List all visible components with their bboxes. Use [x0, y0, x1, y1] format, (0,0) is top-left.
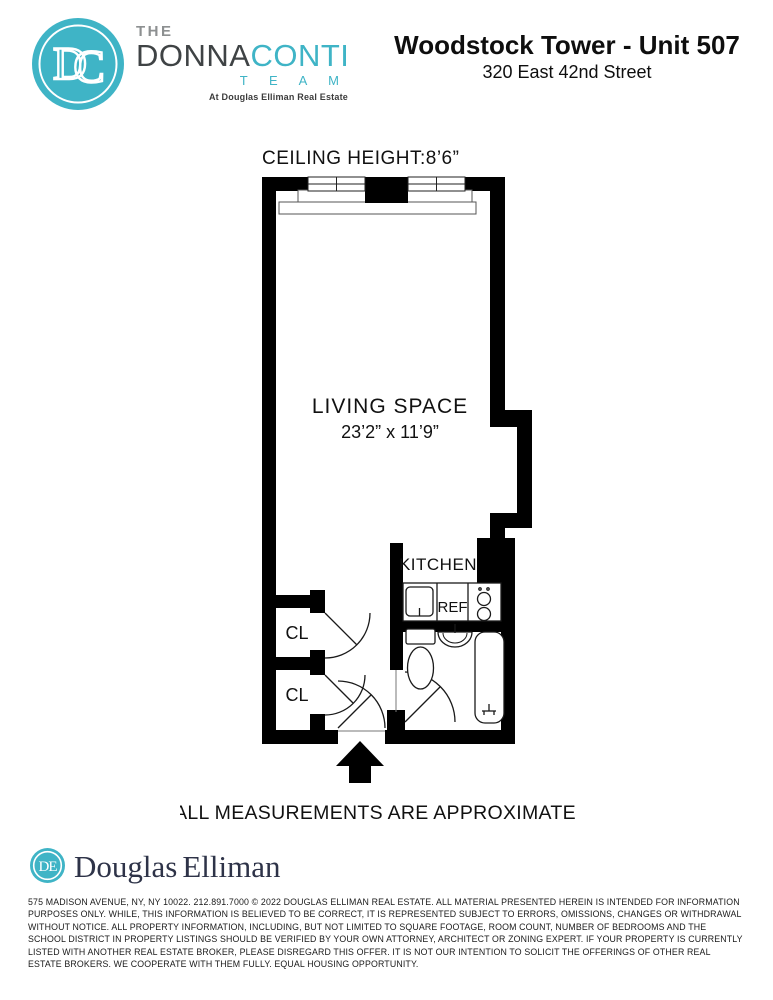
jamb-closet-2 — [310, 650, 325, 675]
brand-tagline: At Douglas Elliman Real Estate — [136, 92, 348, 102]
wall-alcove-right — [517, 410, 532, 528]
wall-bottom-left — [262, 730, 338, 744]
svg-text:C: C — [73, 41, 104, 93]
brand-name: DONNACONTI — [136, 39, 348, 72]
douglas-elliman-logo-icon: DE — [28, 846, 68, 886]
title-block: Woodstock Tower - Unit 507 320 East 42nd… — [388, 30, 746, 84]
floorplan-page: D C THE DONNACONTI T E A M At Douglas El… — [0, 0, 773, 1000]
measurements-note: ALL MEASUREMENTS ARE APPROXIMATE — [180, 802, 576, 824]
bathtub-icon — [475, 632, 504, 723]
refrigerator-label: REF — [438, 599, 468, 616]
stove-burner-2-icon — [478, 608, 491, 621]
window-sill-outer — [279, 202, 476, 214]
wordmark-douglas: Douglas — [74, 849, 177, 884]
window-pier — [365, 177, 408, 203]
de-monogram-icon: DE — [39, 859, 58, 875]
brand-team: T E A M — [136, 73, 348, 89]
jamb-closet-1 — [310, 590, 325, 613]
brand-the: THE — [136, 24, 348, 39]
brand-name-conti: CONTI — [250, 38, 349, 73]
toilet-tank-icon — [406, 629, 435, 644]
floorplan-drawing: CEILING HEIGHT:8’6” LIVING SPACE 23’2” x… — [180, 135, 600, 835]
stove-burner-1-icon — [478, 593, 491, 606]
stove-knob-2 — [487, 588, 489, 590]
jamb-closet-3 — [310, 714, 325, 731]
wall-kitchen-corner — [477, 538, 515, 585]
window-bay — [279, 177, 476, 214]
living-space-dimensions: 23’2” x 11’9” — [341, 422, 439, 442]
kitchen-label: KITCHEN — [399, 555, 477, 574]
dc-monogram-icon: D C — [53, 38, 105, 93]
wordmark-elliman: Elliman — [182, 849, 280, 884]
door-entry — [338, 681, 385, 731]
legal-disclaimer: 575 MADISON AVENUE, NY, NY 10022. 212.89… — [28, 896, 745, 970]
stove-knob-1 — [479, 588, 481, 590]
page-address: 320 East 42nd Street — [388, 60, 746, 84]
ceiling-height-label: CEILING HEIGHT:8’6” — [262, 148, 459, 169]
donna-conti-brand: D C THE DONNACONTI T E A M At Douglas El… — [30, 16, 348, 112]
bathroom-fixtures — [406, 624, 504, 723]
closet-2-label: CL — [285, 685, 308, 705]
toilet-bowl-icon — [408, 647, 434, 689]
wall-bottom-right — [385, 730, 515, 744]
living-space-label: LIVING SPACE — [312, 395, 468, 418]
page-title: Woodstock Tower - Unit 507 — [388, 30, 746, 60]
donna-conti-logo-icon: D C — [30, 16, 126, 112]
door-closet-1 — [325, 613, 370, 658]
brand-name-donna: DONNA — [136, 38, 250, 73]
wall-right-upper — [490, 177, 505, 427]
douglas-elliman-wordmark: DouglasElliman — [74, 849, 280, 885]
jamb-bath — [387, 710, 405, 731]
closet-1-label: CL — [285, 623, 308, 643]
entry-arrow-icon — [336, 741, 384, 783]
brand-text: THE DONNACONTI T E A M At Douglas Ellima… — [136, 16, 348, 102]
